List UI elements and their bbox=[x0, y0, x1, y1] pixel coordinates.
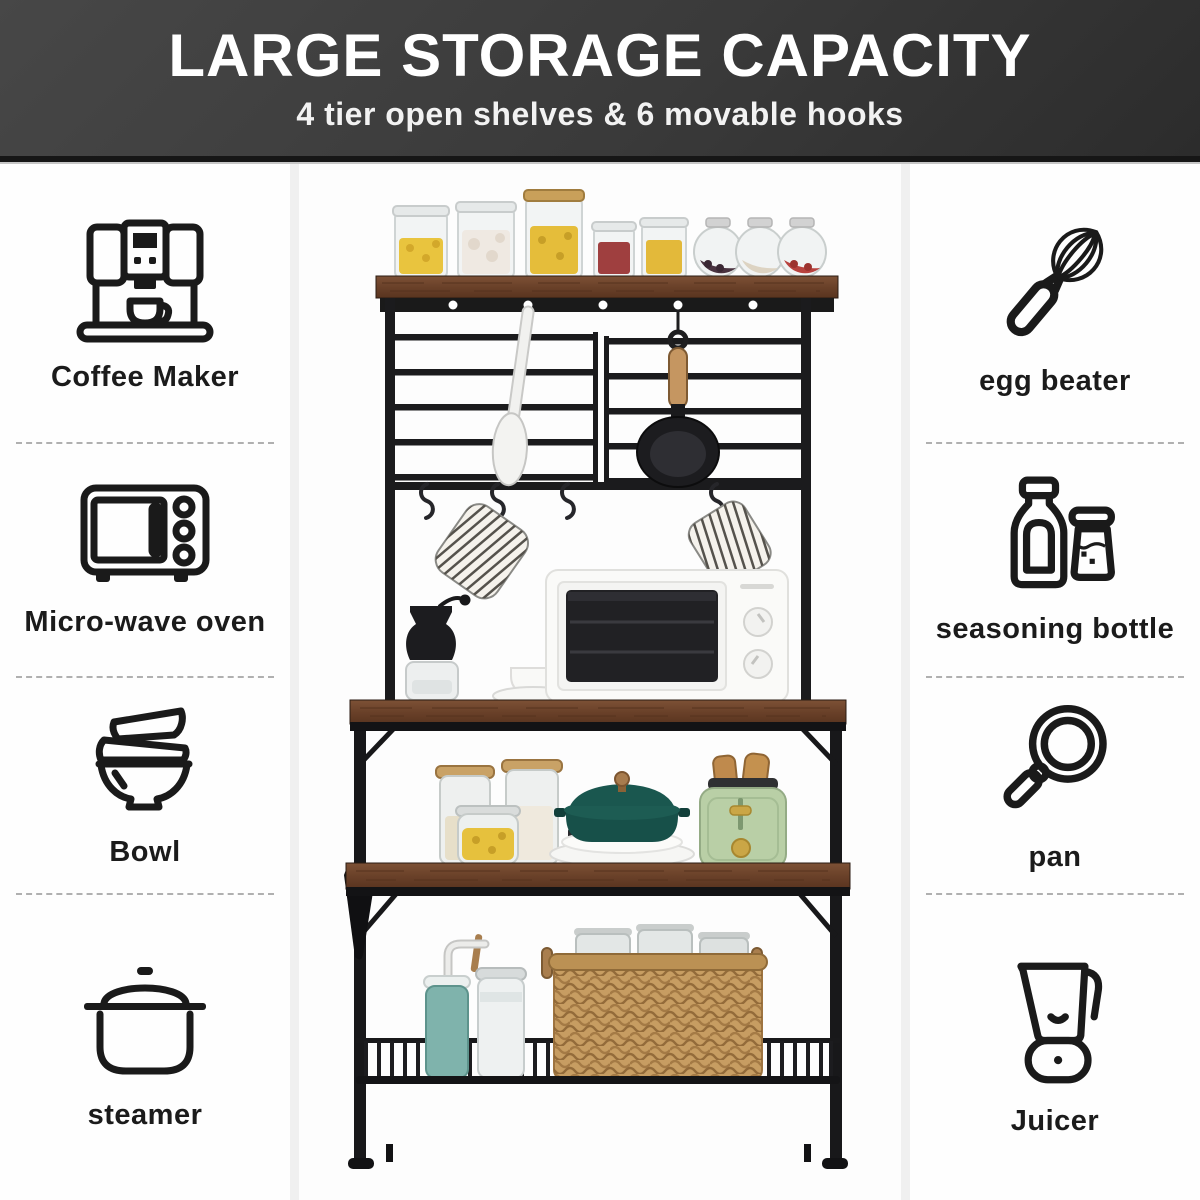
microwave-icon bbox=[78, 482, 213, 590]
microwave-shelf bbox=[350, 700, 846, 731]
top-shelf bbox=[376, 276, 838, 312]
feature-label: Bowl bbox=[109, 836, 180, 869]
storage-basket bbox=[542, 924, 767, 1080]
feature-label: Micro-wave oven bbox=[24, 606, 265, 639]
feature-label: Juicer bbox=[1011, 1105, 1099, 1138]
dashed-divider bbox=[926, 676, 1184, 678]
feature-label: pan bbox=[1028, 841, 1081, 874]
feature-label: steamer bbox=[88, 1099, 203, 1132]
juicer-icon bbox=[992, 957, 1118, 1089]
feature-microwave: Micro-wave oven bbox=[0, 443, 290, 677]
right-feature-column: egg beater seasoning bottle bbox=[910, 164, 1200, 1200]
feature-pan: pan bbox=[910, 677, 1200, 894]
header-banner: LARGE STORAGE CAPACITY 4 tier open shelv… bbox=[0, 0, 1200, 156]
steamer-icon bbox=[70, 963, 220, 1083]
feature-label: egg beater bbox=[979, 365, 1131, 398]
dashed-divider bbox=[16, 676, 274, 678]
feature-steamer: steamer bbox=[0, 894, 290, 1200]
page-subtitle: 4 tier open shelves & 6 movable hooks bbox=[296, 98, 903, 130]
feature-coffee-maker: Coffee Maker bbox=[0, 164, 290, 443]
coffee-maker-icon bbox=[70, 213, 220, 345]
feature-bowl: Bowl bbox=[0, 677, 290, 894]
product-photo bbox=[290, 164, 910, 1200]
dashed-divider bbox=[926, 893, 1184, 895]
seasoning-bottle-icon bbox=[985, 475, 1125, 597]
feature-egg-beater: egg beater bbox=[910, 164, 1200, 443]
feature-seasoning-bottle: seasoning bottle bbox=[910, 443, 1200, 677]
dashed-divider bbox=[16, 442, 274, 444]
microwave bbox=[546, 570, 788, 702]
content-area: Coffee Maker Micro-wave oven bbox=[0, 164, 1200, 1200]
dashed-divider bbox=[16, 893, 274, 895]
middle-shelf bbox=[346, 863, 850, 896]
feature-label: Coffee Maker bbox=[51, 361, 239, 394]
left-feature-column: Coffee Maker Micro-wave oven bbox=[0, 164, 290, 1200]
page-title: LARGE STORAGE CAPACITY bbox=[168, 26, 1031, 86]
pan-icon bbox=[991, 697, 1119, 825]
left-column-divider bbox=[290, 164, 299, 1200]
egg-beater-icon bbox=[985, 209, 1125, 349]
right-column-divider bbox=[901, 164, 910, 1200]
bowl-icon bbox=[84, 702, 206, 820]
dashed-divider bbox=[926, 442, 1184, 444]
feature-label: seasoning bottle bbox=[936, 613, 1174, 646]
wire-shelf-front-rail bbox=[356, 1076, 840, 1084]
feature-juicer: Juicer bbox=[910, 894, 1200, 1200]
